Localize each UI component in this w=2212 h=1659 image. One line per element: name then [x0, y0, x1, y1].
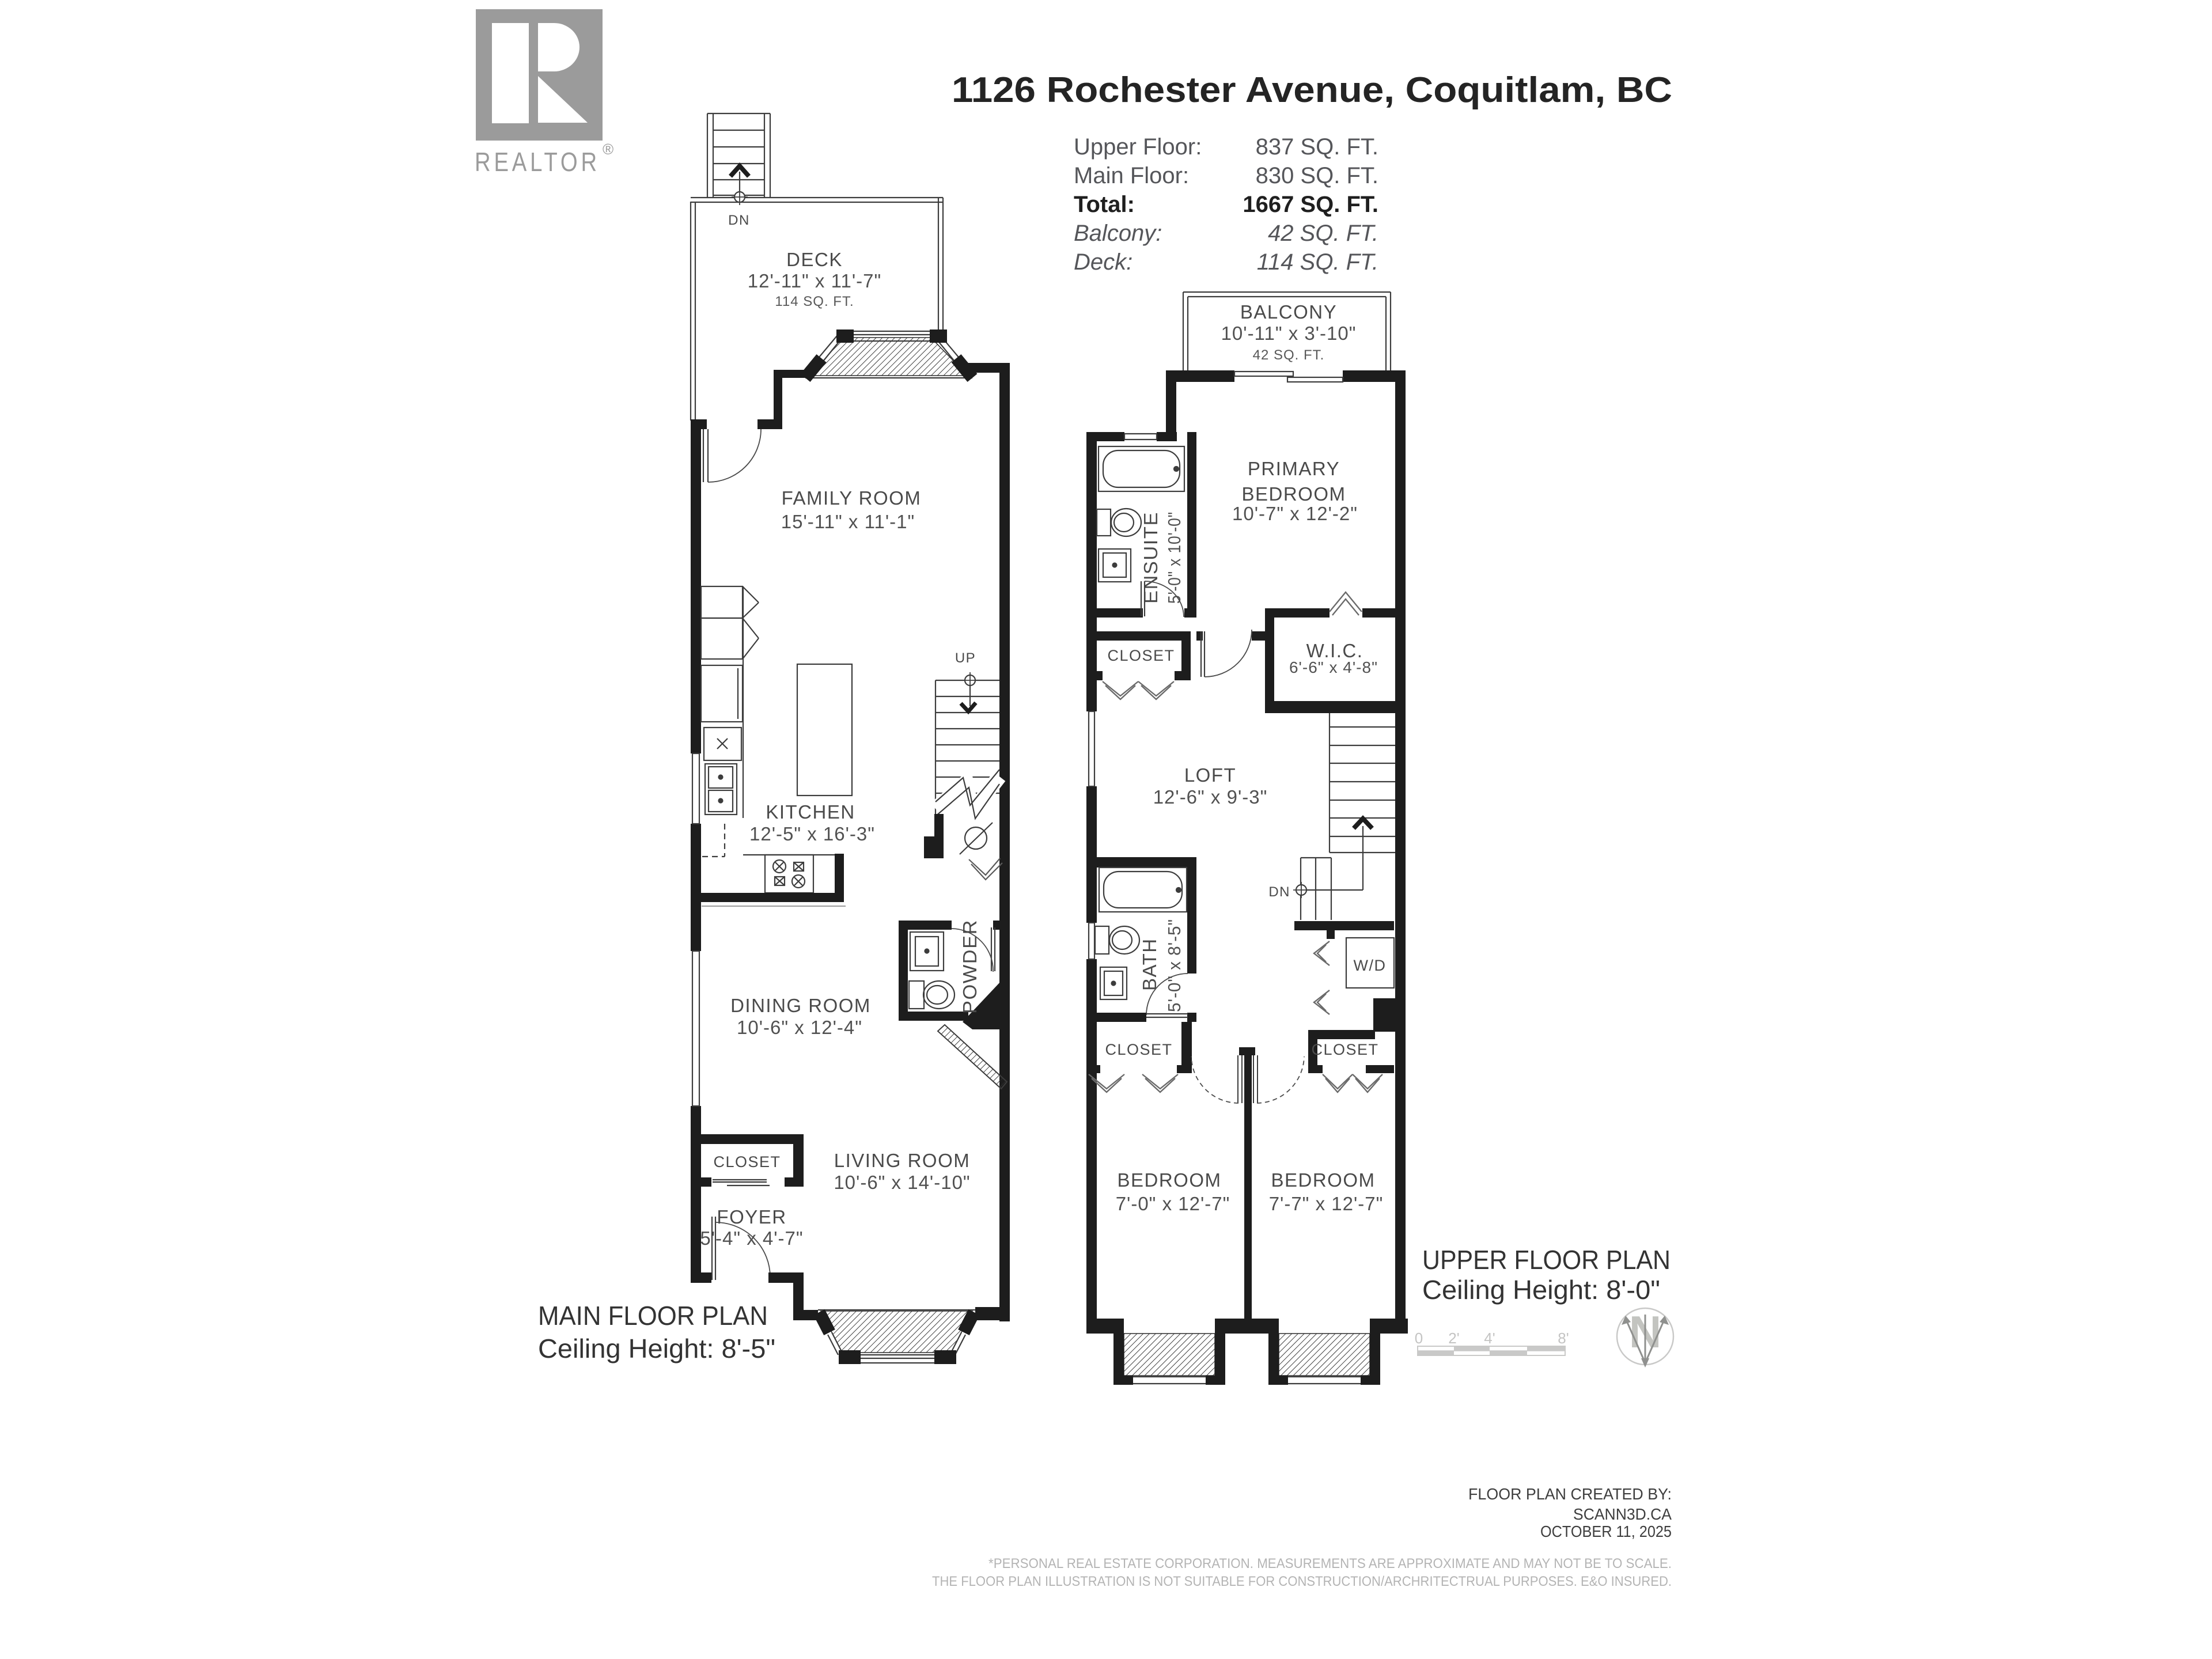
svg-text:15'-11" x 11'-1": 15'-11" x 11'-1" [781, 511, 915, 532]
svg-text:8': 8' [1558, 1330, 1569, 1347]
svg-text:1667 SQ. FT.: 1667 SQ. FT. [1243, 192, 1378, 217]
svg-text:42 SQ. FT.: 42 SQ. FT. [1268, 221, 1378, 246]
svg-text:REALTOR: REALTOR [475, 147, 600, 177]
svg-text:Main Floor:: Main Floor: [1074, 163, 1189, 188]
svg-text:PRIMARY: PRIMARY [1248, 458, 1340, 479]
svg-text:UPPER FLOOR PLAN: UPPER FLOOR PLAN [1422, 1245, 1671, 1275]
svg-text:12'-11" x 11'-7": 12'-11" x 11'-7" [748, 270, 881, 291]
svg-text:BEDROOM: BEDROOM [1117, 1169, 1221, 1191]
svg-text:DN: DN [1268, 884, 1290, 900]
svg-text:KITCHEN: KITCHEN [766, 801, 855, 823]
svg-text:7'-0" x 12'-7": 7'-0" x 12'-7" [1116, 1193, 1230, 1214]
svg-text:LIVING ROOM: LIVING ROOM [834, 1150, 971, 1171]
svg-text:DECK: DECK [786, 249, 843, 270]
svg-text:10'-6" x 12'-4": 10'-6" x 12'-4" [737, 1017, 862, 1038]
svg-text:BEDROOM: BEDROOM [1241, 483, 1346, 505]
svg-text:UP: UP [955, 650, 976, 666]
svg-text:1126 Rochester Avenue, Coquitl: 1126 Rochester Avenue, Coquitlam, BC [952, 70, 1672, 110]
svg-text:CLOSET: CLOSET [1311, 1041, 1378, 1058]
svg-text:BATH: BATH [1139, 938, 1160, 991]
svg-text:114 SQ. FT.: 114 SQ. FT. [775, 294, 854, 309]
svg-text:Upper Floor:: Upper Floor: [1074, 134, 1202, 160]
svg-text:Balcony:: Balcony: [1074, 221, 1162, 246]
svg-text:SCANN3D.CA: SCANN3D.CA [1573, 1505, 1672, 1523]
svg-text:6'-6" x 4'-8": 6'-6" x 4'-8" [1289, 658, 1378, 676]
svg-text:10'-7" x 12'-2": 10'-7" x 12'-2" [1232, 503, 1358, 524]
svg-text:114 SQ. FT.: 114 SQ. FT. [1257, 249, 1378, 275]
svg-text:5'-0" x 8'-5": 5'-0" x 8'-5" [1164, 919, 1184, 1012]
svg-text:OCTOBER 11, 2025: OCTOBER 11, 2025 [1540, 1522, 1672, 1540]
svg-text:FLOOR PLAN CREATED BY:: FLOOR PLAN CREATED BY: [1468, 1485, 1672, 1503]
svg-text:12'-5" x 16'-3": 12'-5" x 16'-3" [749, 823, 875, 844]
svg-text:ENSUITE: ENSUITE [1140, 512, 1161, 604]
svg-text:CLOSET: CLOSET [713, 1153, 781, 1171]
svg-text:2': 2' [1448, 1330, 1459, 1347]
svg-text:0: 0 [1415, 1330, 1423, 1347]
svg-text:LOFT: LOFT [1184, 764, 1236, 786]
svg-text:42 SQ. FT.: 42 SQ. FT. [1253, 347, 1325, 363]
svg-text:Deck:: Deck: [1074, 249, 1132, 275]
svg-text:POWDER: POWDER [959, 919, 980, 1014]
svg-text:Ceiling Height: 8'-5": Ceiling Height: 8'-5" [538, 1334, 775, 1363]
svg-text:Total:: Total: [1074, 192, 1135, 217]
svg-text:BEDROOM: BEDROOM [1271, 1169, 1375, 1191]
svg-text:4': 4' [1484, 1330, 1495, 1347]
svg-text:12'-6" x 9'-3": 12'-6" x 9'-3" [1153, 786, 1268, 808]
svg-text:5'-0" x 10'-0": 5'-0" x 10'-0" [1164, 512, 1184, 604]
svg-text:7'-7" x 12'-7": 7'-7" x 12'-7" [1269, 1193, 1384, 1214]
svg-text:10'-6" x 14'-10": 10'-6" x 14'-10" [834, 1172, 970, 1193]
svg-text:FOYER: FOYER [717, 1206, 786, 1228]
svg-text:CLOSET: CLOSET [1107, 647, 1175, 664]
svg-text:10'-11" x 3'-10": 10'-11" x 3'-10" [1221, 323, 1357, 344]
svg-text:CLOSET: CLOSET [1105, 1041, 1172, 1058]
svg-text:*PERSONAL REAL ESTATE CORPORAT: *PERSONAL REAL ESTATE CORPORATION. MEASU… [988, 1556, 1672, 1571]
svg-text:830 SQ. FT.: 830 SQ. FT. [1256, 163, 1378, 188]
svg-text:BALCONY: BALCONY [1240, 301, 1337, 323]
svg-text:MAIN FLOOR PLAN: MAIN FLOOR PLAN [538, 1301, 768, 1331]
svg-text:DN: DN [728, 213, 750, 228]
svg-text:FAMILY ROOM: FAMILY ROOM [782, 487, 922, 509]
svg-text:THE FLOOR PLAN ILLUSTRATION IS: THE FLOOR PLAN ILLUSTRATION IS NOT SUITA… [932, 1574, 1672, 1589]
svg-text:Ceiling Height: 8'-0": Ceiling Height: 8'-0" [1422, 1275, 1660, 1305]
svg-text:837 SQ. FT.: 837 SQ. FT. [1256, 134, 1378, 160]
svg-text:W/D: W/D [1354, 957, 1387, 974]
svg-text:®: ® [603, 141, 613, 158]
svg-text:DINING ROOM: DINING ROOM [730, 995, 871, 1016]
